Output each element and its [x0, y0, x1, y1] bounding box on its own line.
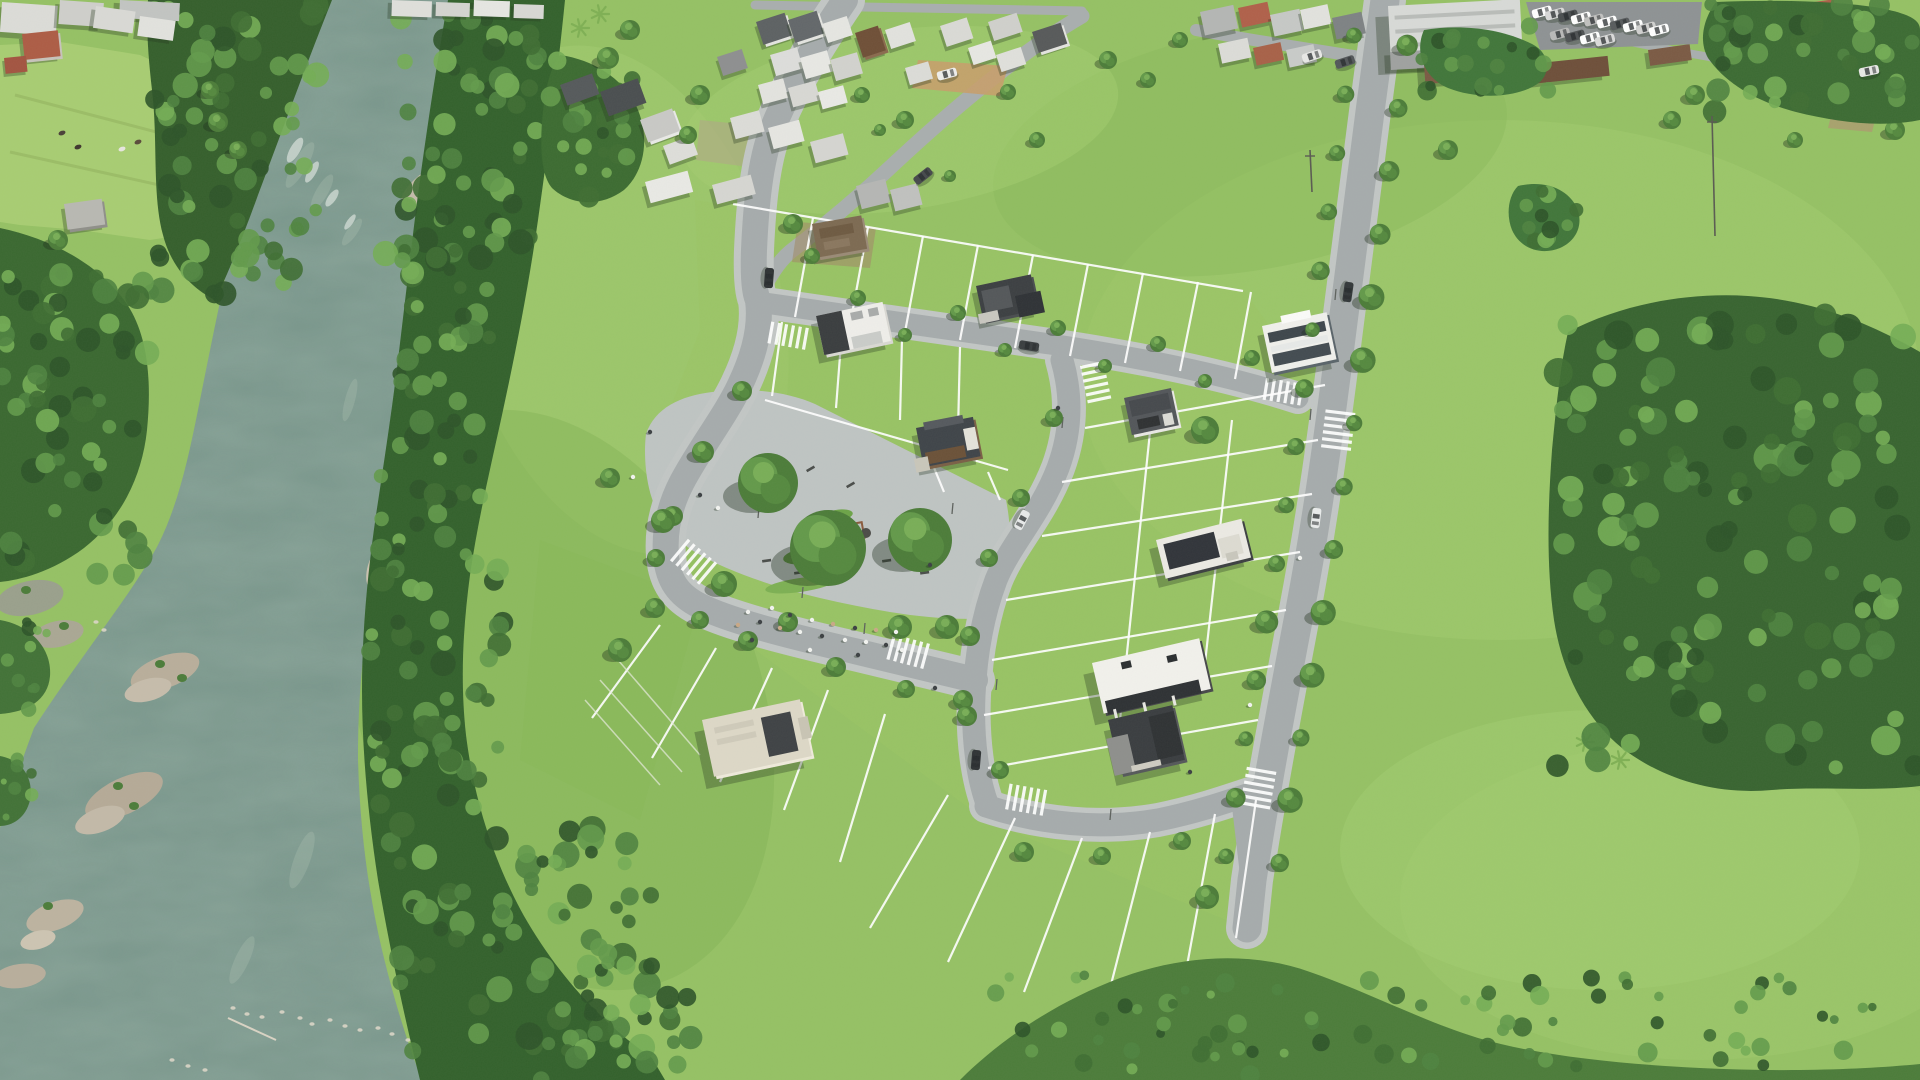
aerial-development-photo [0, 0, 1920, 1080]
scene-canvas [0, 0, 1920, 1080]
scene-root [0, 0, 1920, 1080]
photo-grain [0, 0, 1920, 1080]
